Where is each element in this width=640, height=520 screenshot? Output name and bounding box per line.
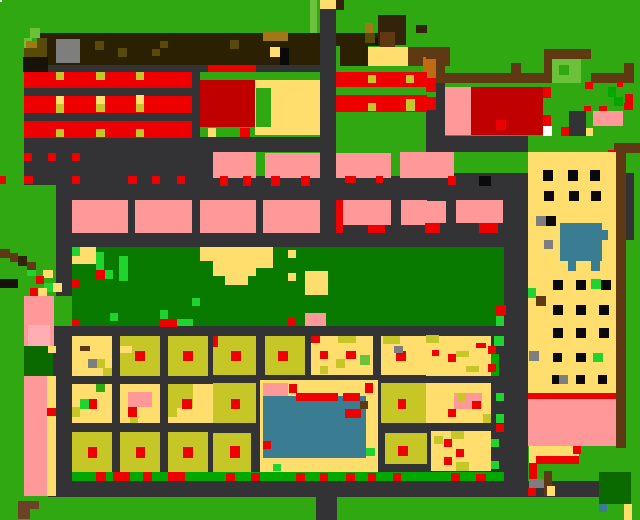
game-world-map [0,0,640,520]
pixel-map-canvas[interactable] [0,0,640,520]
